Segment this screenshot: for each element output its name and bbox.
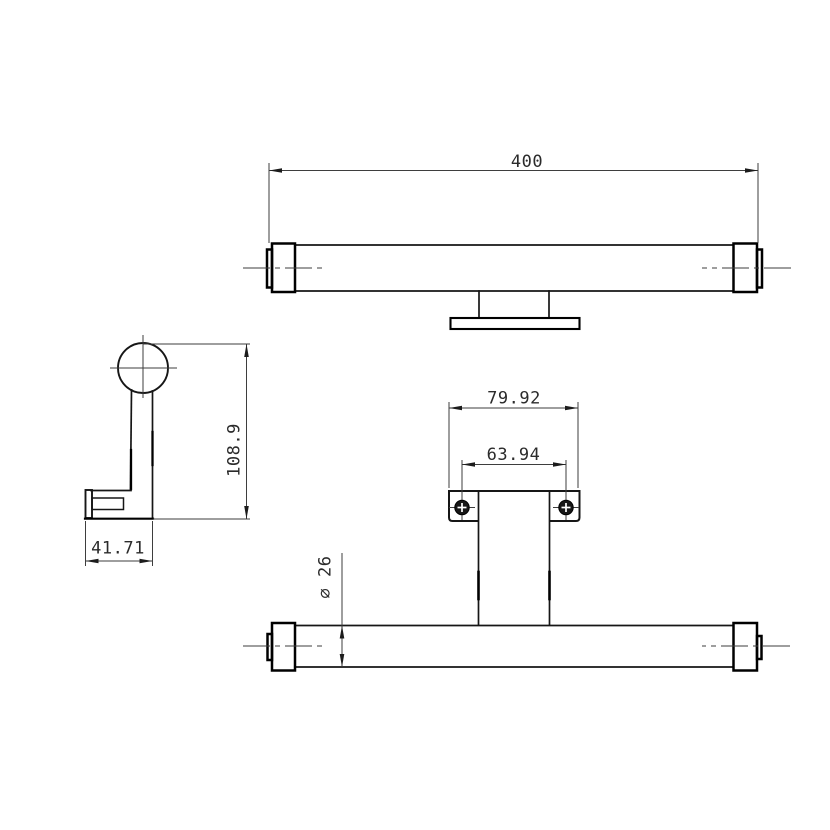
screw-left xyxy=(449,495,475,520)
side-view: 108.9 41.71 xyxy=(85,335,250,566)
dim-79-92: 79.92 xyxy=(449,389,578,489)
engineering-drawing-svg: 400 108.9 xyxy=(0,0,830,830)
top-view: 400 xyxy=(243,152,791,329)
technical-drawing-page: 400 108.9 xyxy=(0,0,830,830)
wall-flange xyxy=(86,490,93,518)
arrowhead-icon xyxy=(86,559,99,564)
arrowhead-icon xyxy=(244,506,249,519)
arrowhead-icon xyxy=(553,462,566,467)
end-cap-left xyxy=(272,623,295,671)
dim-79-92-label: 79.92 xyxy=(487,389,541,409)
dim-41-71-label: 41.71 xyxy=(91,539,145,559)
arrowhead-icon xyxy=(244,344,249,357)
dim-400: 400 xyxy=(269,152,758,243)
arrowhead-icon xyxy=(745,168,758,173)
dim-108-9: 108.9 xyxy=(143,344,250,519)
dim-41-71: 41.71 xyxy=(86,521,153,566)
dim-400-label: 400 xyxy=(511,152,543,172)
arrowhead-icon xyxy=(269,168,282,173)
arrowhead-icon xyxy=(340,626,345,639)
arrowhead-icon xyxy=(462,462,475,467)
dim-diameter-26: ⌀ 26 xyxy=(316,553,345,667)
bracket-tab xyxy=(92,498,124,510)
screw-right xyxy=(553,495,579,520)
dim-63-94: 63.94 xyxy=(462,445,566,496)
arrowhead-icon xyxy=(140,559,153,564)
end-boss-right xyxy=(757,636,762,659)
end-cap-right xyxy=(734,623,758,671)
arrowhead-icon xyxy=(565,406,578,411)
dim-63-94-label: 63.94 xyxy=(487,445,541,465)
end-boss-left xyxy=(268,634,273,660)
base-plate xyxy=(451,318,580,329)
arrowhead-icon xyxy=(340,654,345,667)
arrowhead-icon xyxy=(449,406,462,411)
dim-108-9-label: 108.9 xyxy=(225,423,245,477)
front-view: 79.92 63.94 ⌀ 26 xyxy=(243,389,790,671)
dim-diameter-26-label: ⌀ 26 xyxy=(316,556,336,599)
